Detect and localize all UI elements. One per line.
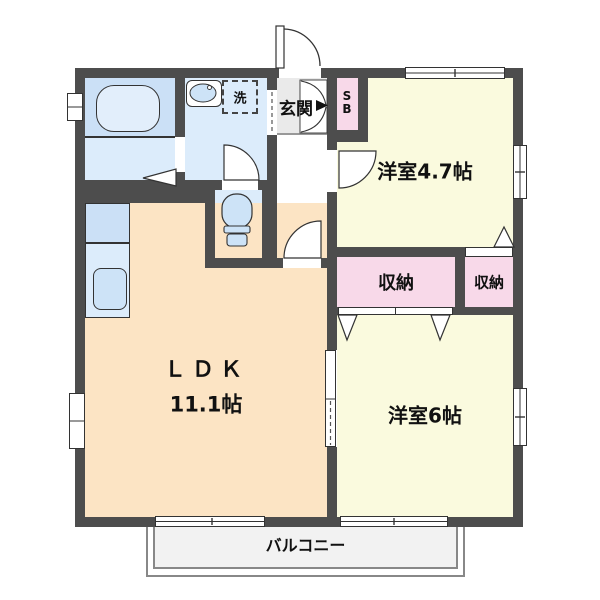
wall-left xyxy=(75,68,85,527)
bathroom-door-gap xyxy=(175,137,185,172)
wall-toilet-right xyxy=(262,180,277,268)
shoe-box-label: SB xyxy=(341,90,353,116)
wall-closet-bottom-a xyxy=(327,307,338,315)
wall-closet-divider xyxy=(455,247,465,315)
toilet-door-gap xyxy=(222,180,258,190)
room-6-label: 洋室6帖 xyxy=(388,400,462,429)
wall-toilet-left xyxy=(205,180,215,268)
room-47-door-gap xyxy=(327,150,337,192)
front-door-gap xyxy=(279,66,321,78)
kitchen-sink xyxy=(93,268,127,310)
wall-center-vertical-b xyxy=(327,192,337,350)
closet-sub-label: 収納 xyxy=(474,272,504,293)
bathroom-window xyxy=(67,93,83,121)
closet-main-door-strip xyxy=(338,307,453,315)
washbasin-counter xyxy=(186,80,222,107)
wall-shoebox-bottom xyxy=(327,130,368,142)
wall-right xyxy=(513,68,523,527)
closet-main-label: 収納 xyxy=(378,269,414,295)
bathroom-divider-line xyxy=(85,136,175,138)
wall-toilet-top-a xyxy=(205,180,222,190)
wall-washroom-entrance-upper xyxy=(267,78,277,90)
washing-machine-label: 洗 xyxy=(233,88,246,107)
floor-plan: バルコニー xyxy=(0,0,600,600)
kitchen-counter-upper xyxy=(85,203,130,243)
ldk-label: ＬＤＫ 11.1帖 xyxy=(164,352,248,419)
wall-center-vertical-c xyxy=(327,447,337,517)
room-6-right-window xyxy=(513,388,527,446)
front-door xyxy=(276,26,320,68)
room-47-label: 洋室4.7帖 xyxy=(377,156,472,185)
wall-bath-kitchen-band xyxy=(75,180,215,203)
ldk-balcony-sliding-door xyxy=(155,516,265,527)
closet-sub-door-strip xyxy=(465,247,513,257)
room-47-top-window xyxy=(405,67,505,79)
entrance-label: 玄関 xyxy=(279,95,313,120)
wall-bath-washroom-upper xyxy=(175,78,185,137)
wall-bottom xyxy=(75,517,523,527)
ldk-name: ＬＤＫ xyxy=(164,352,248,384)
wall-closet-bottom-b xyxy=(453,307,513,315)
balcony: バルコニー xyxy=(153,520,458,569)
balcony-label: バルコニー xyxy=(266,532,346,556)
ldk-room6-sliding-partition xyxy=(325,350,336,447)
washroom-sliding-door xyxy=(267,90,277,135)
bathtub xyxy=(96,85,160,132)
hall-ldk-door-gap xyxy=(283,258,321,268)
wall-hall-bottom-a xyxy=(205,258,283,268)
wall-closet-top xyxy=(327,247,465,257)
room-47-right-window xyxy=(513,145,527,199)
ldk-window xyxy=(69,393,85,449)
room-6-balcony-sliding-door xyxy=(340,516,448,527)
ldk-size: 11.1帖 xyxy=(164,389,248,419)
